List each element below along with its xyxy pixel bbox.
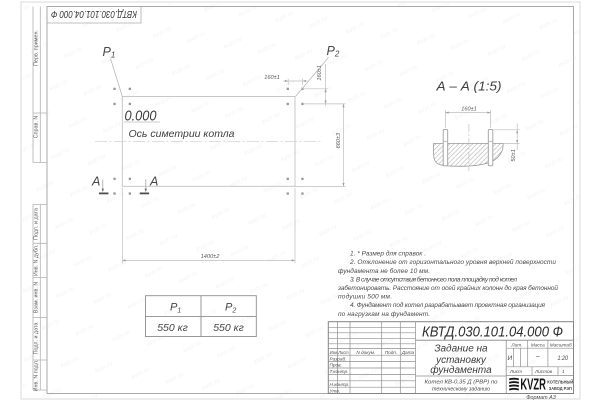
svg-text:Листов: Листов — [534, 369, 553, 374]
svg-text:Инв. N подл.: Инв. N подл. — [34, 360, 40, 392]
svg-text:Изм.Лист: Изм.Лист — [330, 350, 349, 355]
svg-text:550 кг: 550 кг — [213, 322, 244, 334]
svg-text:Справ. N: Справ. N — [34, 116, 40, 139]
svg-text:1. * Размер для справок .: 1. * Размер для справок . — [350, 250, 426, 258]
svg-text:160±1: 160±1 — [264, 75, 280, 81]
svg-text:Лит.: Лит. — [510, 342, 522, 347]
svg-text:–: – — [535, 354, 540, 361]
svg-text:КВТД.030.101.04.000 Ф: КВТД.030.101.04.000 Ф — [51, 8, 137, 19]
svg-text:3. В случае отсутствия бетонно: 3. В случае отсутствия бетонного пола пл… — [350, 275, 517, 283]
svg-text:160±1: 160±1 — [317, 65, 323, 81]
svg-text:по нагрузкам на фундамент.: по нагрузкам на фундамент. — [338, 310, 430, 318]
svg-text:И: И — [507, 355, 512, 362]
svg-text:1: 1 — [562, 369, 565, 374]
svg-text:160±1: 160±1 — [461, 106, 477, 112]
svg-text:Ось симетрии котла: Ось симетрии котла — [129, 129, 235, 140]
svg-text:фундамента не более 10 мм.: фундамента не более 10 мм. — [338, 267, 430, 275]
svg-text:А: А — [149, 175, 158, 189]
svg-text:Утв.: Утв. — [330, 388, 341, 393]
svg-text:N докум.: N докум. — [356, 350, 375, 355]
svg-text:Подп. и дата: Подп. и дата — [34, 208, 40, 240]
svg-text:Подп. и дата: Подп. и дата — [34, 323, 40, 355]
svg-text:А – А (1:5): А – А (1:5) — [435, 79, 501, 94]
svg-text:Задание на: Задание на — [434, 344, 488, 355]
svg-text:Дата: Дата — [401, 350, 415, 355]
svg-text:KVZR: KVZR — [520, 376, 546, 393]
svg-text:Лист: Лист — [509, 369, 522, 374]
svg-text:660±3: 660±3 — [336, 132, 342, 148]
svg-text:Н.контр.: Н.контр. — [330, 382, 350, 387]
svg-text:1400±2: 1400±2 — [201, 254, 221, 260]
svg-text:Подп.: Подп. — [385, 350, 397, 355]
svg-text:2. Отклонение от горизонтально: 2. Отклонение от горизонтального уровня … — [349, 258, 556, 266]
svg-text:Разраб.: Разраб. — [330, 356, 347, 361]
svg-text:Котел КВ-0,35 Д (РВР) по: Котел КВ-0,35 Д (РВР) по — [425, 379, 498, 385]
svg-text:А: А — [91, 175, 100, 189]
svg-text:Пров.: Пров. — [330, 363, 342, 368]
svg-text:Т.контр.: Т.контр. — [330, 369, 349, 374]
svg-text:подушки 500 мм.: подушки 500 мм. — [338, 293, 392, 301]
svg-text:фундамента: фундамента — [430, 364, 492, 376]
svg-text:забетонировать. Расстояние от: забетонировать. Расстояние от осей крайн… — [337, 284, 558, 292]
svg-text:Инв. N дубл.: Инв. N дубл. — [34, 245, 40, 277]
svg-text:1:20: 1:20 — [558, 355, 569, 362]
svg-text:техническому заданию: техническому заданию — [432, 387, 491, 393]
svg-text:50±1: 50±1 — [511, 149, 517, 161]
svg-text:ЗАВОД РЭП: ЗАВОД РЭП — [549, 386, 573, 391]
svg-text:Перв. примен.: Перв. примен. — [34, 30, 40, 66]
svg-text:Взам. инв. N: Взам. инв. N — [34, 282, 40, 314]
svg-text:КВТД.030.101.04.000 Ф: КВТД.030.101.04.000 Ф — [422, 323, 563, 340]
svg-text:КОТЕЛЬНЫЙ: КОТЕЛЬНЫЙ — [547, 378, 574, 385]
svg-text:550 кг: 550 кг — [157, 322, 188, 334]
svg-text:Масштаб: Масштаб — [550, 342, 572, 347]
svg-text:4. Фундамент под котел разраба: 4. Фундамент под котел разрабатывает про… — [350, 301, 546, 309]
svg-text:Формат А3: Формат А3 — [526, 395, 556, 400]
svg-text:Масса: Масса — [531, 342, 545, 347]
